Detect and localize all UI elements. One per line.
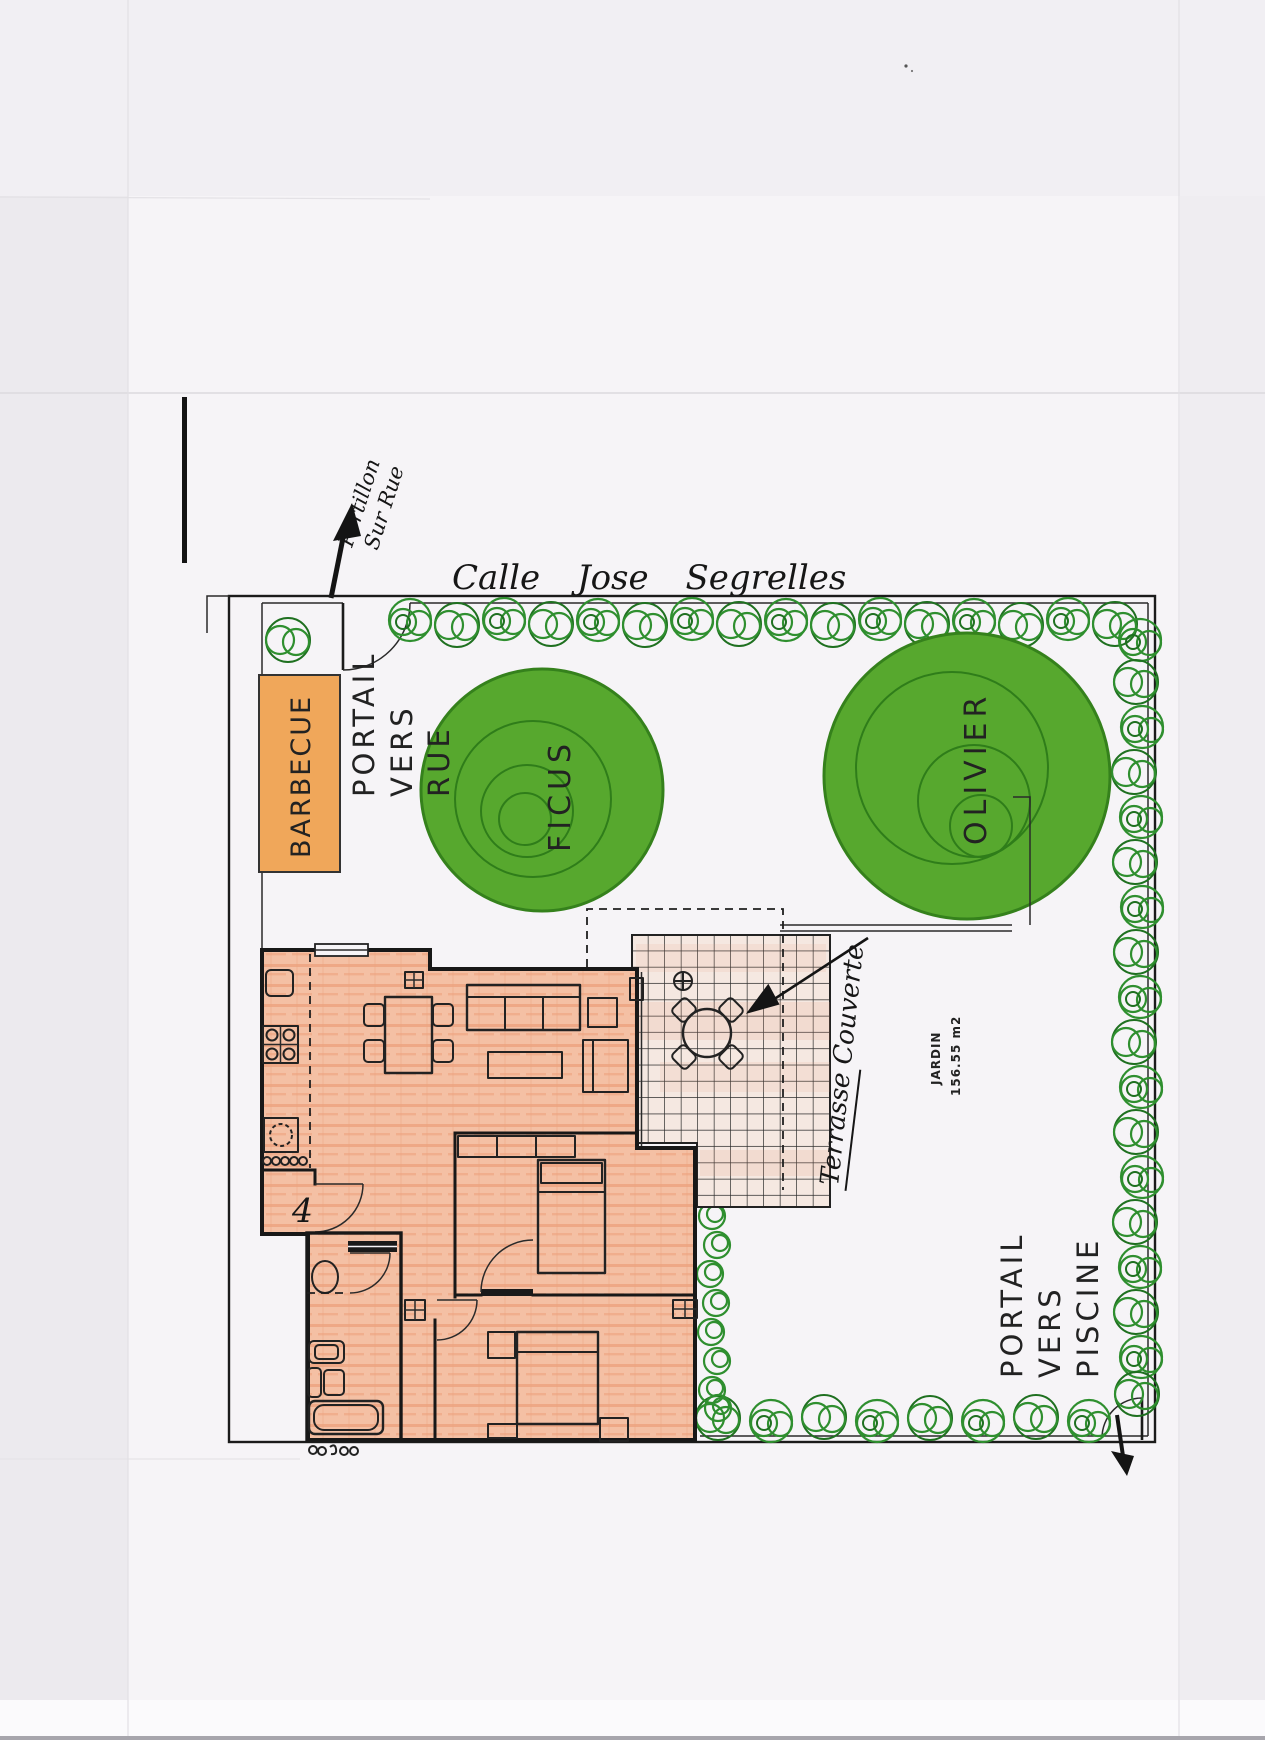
house: 4 — [262, 944, 697, 1455]
house-floor — [262, 950, 695, 1440]
garden-name-label: JARDIN — [929, 1032, 943, 1086]
portal-pool-line2: VERS — [1033, 1285, 1067, 1378]
portal-pool-line1: PORTAIL — [995, 1232, 1029, 1378]
portal-street-line3: RUE — [422, 725, 456, 797]
hall-number-label: 4 — [291, 1191, 313, 1230]
barbecue-area: BARBECUE — [259, 675, 340, 872]
barbecue-label: BARBECUE — [286, 695, 317, 858]
garden-plan-drawing: Calle Jose Segrelles Portillon Sur Rue — [0, 0, 1265, 1740]
garden-area-label: 156.55 m2 — [949, 1016, 963, 1096]
tree-olivier: OLIVIER — [824, 633, 1110, 919]
portal-street-line1: PORTAIL — [347, 651, 381, 797]
scanned-garden-plan-page: Calle Jose Segrelles Portillon Sur Rue — [0, 0, 1265, 1740]
margin-mark — [182, 397, 187, 563]
olivier-label: OLIVIER — [959, 692, 994, 845]
post-marker — [674, 972, 692, 990]
street-name-label: Calle Jose Segrelles — [452, 558, 846, 598]
ficus-label: FICUS — [543, 739, 578, 852]
portal-pool-line3: PISCINE — [1071, 1237, 1105, 1378]
bedroom1-door-leaf — [481, 1289, 533, 1296]
stove — [263, 1026, 298, 1063]
tree-ficus: FICUS — [421, 669, 663, 911]
portal-street-line2: VERS — [385, 704, 419, 797]
kitchen-window — [315, 944, 368, 956]
